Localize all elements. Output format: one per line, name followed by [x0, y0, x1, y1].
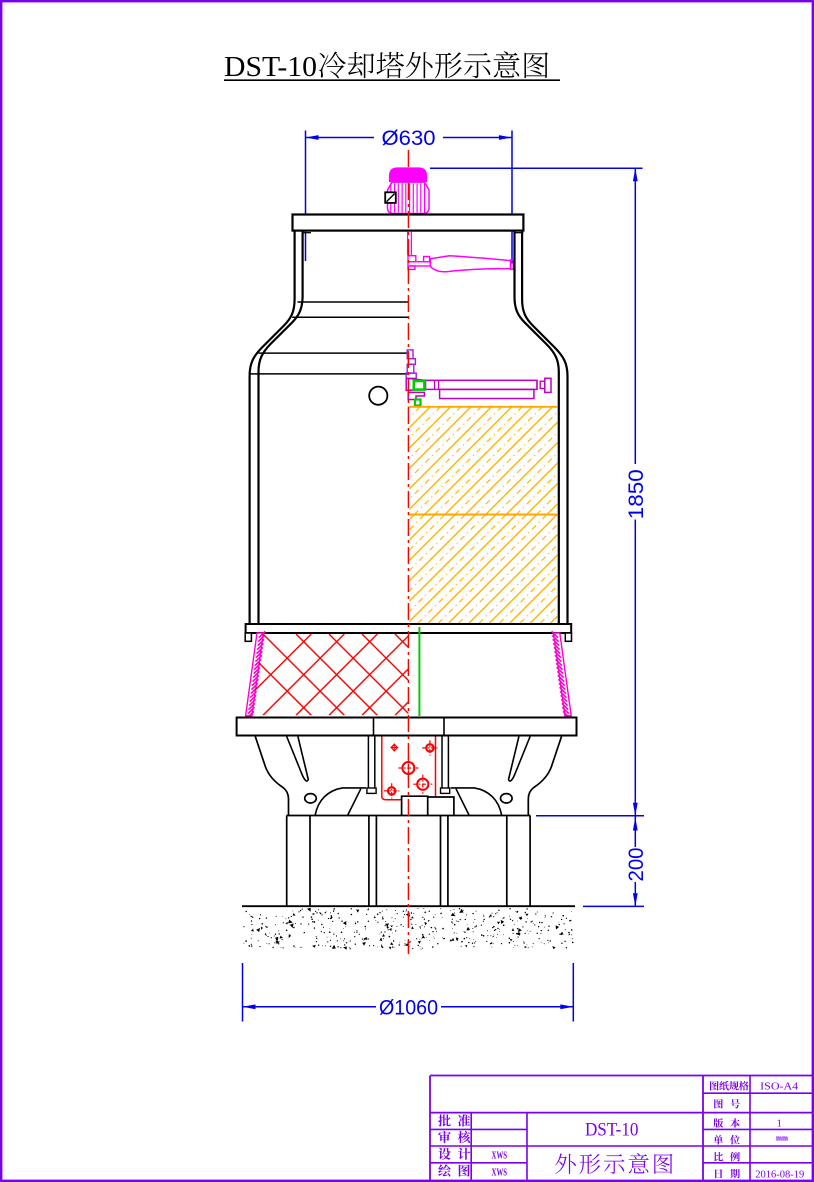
svg-text:1850: 1850	[625, 469, 648, 519]
svg-text:XWS: XWS	[492, 1150, 508, 1162]
svg-text:XWS: XWS	[492, 1166, 508, 1178]
svg-text:DST-10: DST-10	[585, 1120, 639, 1141]
svg-text:Ø1060: Ø1060	[379, 996, 438, 1019]
svg-text:2016-08-19: 2016-08-19	[755, 1168, 804, 1180]
svg-text:mm: mm	[776, 1133, 788, 1143]
svg-text:DST-10: DST-10	[224, 51, 317, 83]
svg-text:Ø630: Ø630	[382, 127, 436, 150]
svg-text:200: 200	[625, 848, 648, 882]
svg-text:1: 1	[776, 1118, 782, 1130]
svg-text:ISO-A4: ISO-A4	[760, 1080, 799, 1092]
